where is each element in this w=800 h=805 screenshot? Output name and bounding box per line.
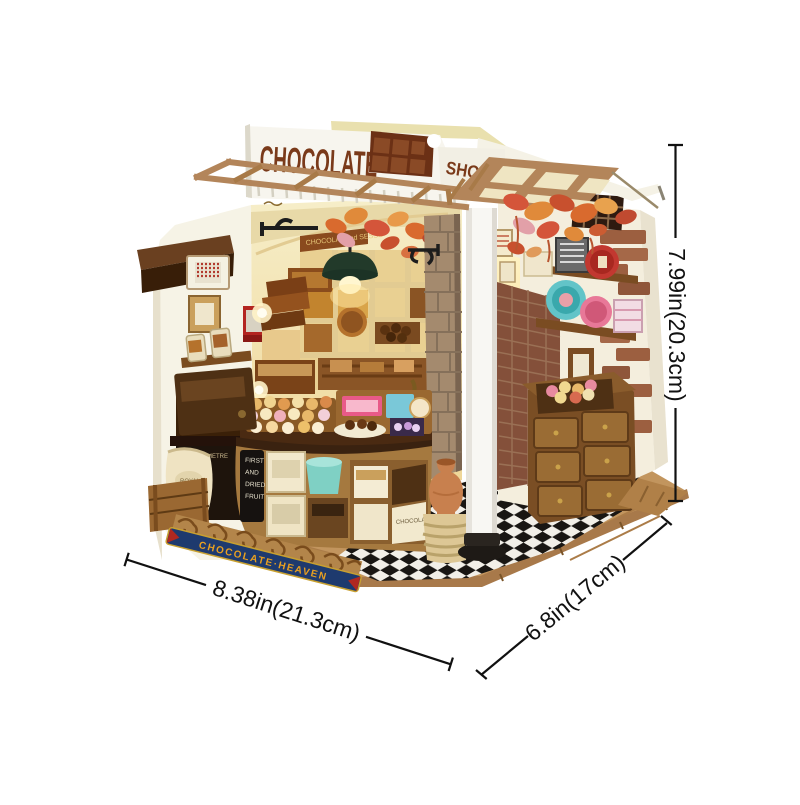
svg-text:AND: AND — [245, 469, 259, 477]
svg-text:FIRST: FIRST — [245, 457, 264, 465]
svg-text:7.99in(20.3cm): 7.99in(20.3cm) — [664, 248, 690, 401]
svg-text:FRUIT: FRUIT — [245, 493, 265, 501]
svg-text:DRIED: DRIED — [245, 481, 266, 489]
